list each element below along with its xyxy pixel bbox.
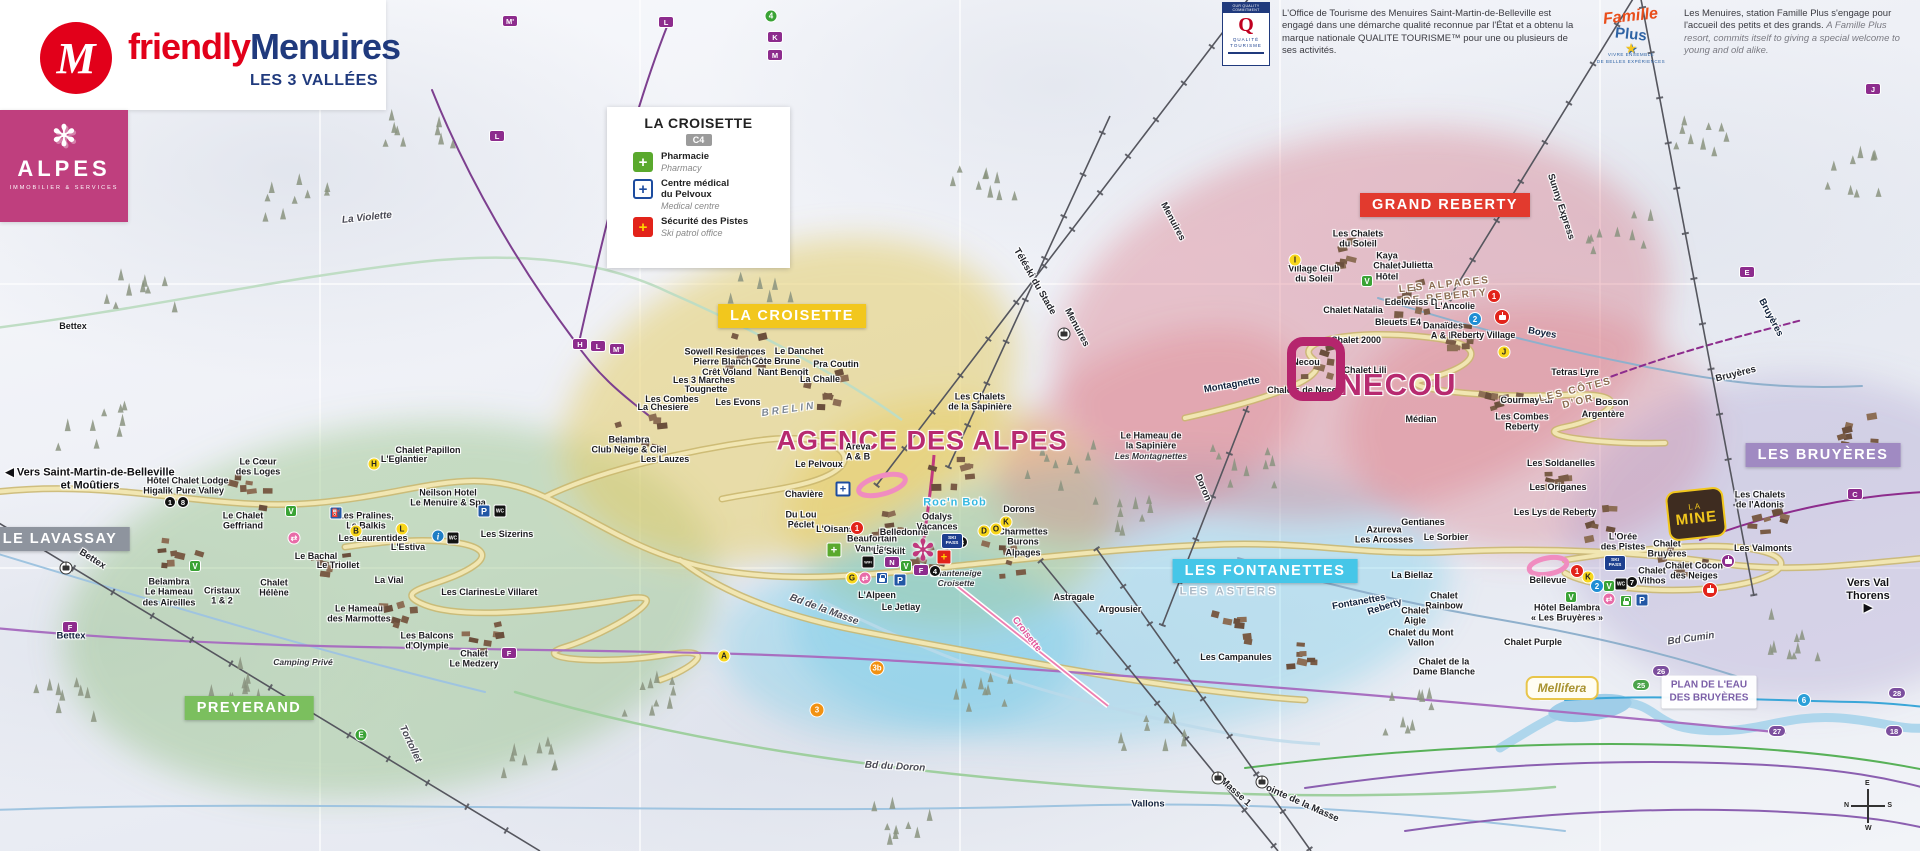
map-label: Les Campanules <box>1200 652 1272 662</box>
map-badge-M': M' <box>609 343 625 355</box>
lock-icon <box>1620 595 1632 607</box>
legend-item-fr: Centre médical du Pelvoux <box>661 179 729 201</box>
map-badge-1: 1 <box>1487 289 1501 303</box>
piste-boyes <box>1378 298 1862 387</box>
map-badge-⇄: ⇄ <box>1603 593 1616 606</box>
map-label: Charmettes Burons Alpages <box>998 526 1048 557</box>
map-label: Sunny Express <box>1544 173 1576 242</box>
zone-banner: GRAND REBERTY <box>1360 193 1530 217</box>
lifts-layer <box>0 0 1754 851</box>
map-badge-18: 18 <box>1885 725 1903 737</box>
map-label: Les Lys de Reberty <box>1514 507 1596 517</box>
croisette-carpet <box>952 582 1108 706</box>
qualite-logo-top: OUR QUALITY COMMITMENT <box>1223 3 1269 13</box>
map-label: Le Pelvoux <box>795 459 843 469</box>
brand-menuires: Menuires <box>250 26 400 67</box>
map-badge-28: 28 <box>1888 687 1906 699</box>
alpes-wordmark: ALPES <box>0 156 128 182</box>
compass-rose: E S W N <box>1851 789 1885 823</box>
map-badge-L: L <box>489 130 505 142</box>
map-label: Chalet Lodge Pure Valley <box>171 476 228 497</box>
famille-plus-block: FamillePlus ★ VIVRE ENSEMBLE DE BELLES E… <box>1592 2 1912 66</box>
map-label: Boyes <box>1527 326 1557 342</box>
map-badge-H: H <box>368 458 381 471</box>
ski-patrol-cross: + <box>633 217 653 237</box>
compass-axis <box>1851 805 1885 807</box>
map-badge-⛽: ⛽ <box>330 507 343 520</box>
map-label: Bosson <box>1595 397 1628 407</box>
map-label: Chalet Rainbow <box>1425 591 1463 612</box>
map-badge-B: B <box>350 525 363 538</box>
map-label: Pointe de la Masse <box>1258 781 1340 826</box>
map-label: LES CÔTES D'OR <box>1538 376 1616 416</box>
map-label: Camping Privé <box>273 658 333 668</box>
map-label: Les Chalets du Soleil <box>1333 229 1384 250</box>
brand-tagline: LES 3 VALLÉES <box>128 72 378 90</box>
map-label: Vallons <box>1131 800 1164 811</box>
map-label: Chalet Aigle <box>1401 606 1429 627</box>
qualite-tourisme-logo: OUR QUALITY COMMITMENT Q QUALITÉ TOURISM… <box>1222 2 1270 66</box>
qualite-tourisme-block: OUR QUALITY COMMITMENT Q QUALITÉ TOURISM… <box>1222 2 1582 66</box>
map-label: AGENCE DES ALPES <box>776 425 1067 456</box>
roads-layer <box>0 334 1920 700</box>
legend-item: +PharmaciePharmacy <box>633 152 790 173</box>
river <box>820 600 1920 748</box>
map-badge-L: L <box>590 340 606 352</box>
map-badge-E: E <box>1739 266 1755 278</box>
pistes-layer <box>0 24 1920 831</box>
map-label: L'Alpeen <box>858 590 896 600</box>
map-label: Les Combes Reberty <box>1495 412 1549 433</box>
map-label: Le Skilt <box>873 546 905 556</box>
legend-items: +PharmaciePharmacy+Centre médical du Pel… <box>607 152 790 239</box>
map-label: Chalet Cocon des Neiges <box>1665 561 1723 582</box>
map-label: Les Sizerins <box>481 529 534 539</box>
gondola-icon <box>1721 554 1735 568</box>
map-label: Le Triollet <box>317 560 360 570</box>
qualite-q-icon: Q <box>1238 13 1254 37</box>
qualite-logo-name: QUALITÉ TOURISME <box>1223 37 1269 50</box>
map-label: Les Pralines, Le Balkis <box>338 511 394 532</box>
map-label: Chavière <box>785 489 823 499</box>
map-label: Chalet Natalia <box>1323 305 1383 315</box>
map-labels-layer: AGENCE DES ALPESNECOU◀ Vers Saint-Martin… <box>0 0 1920 851</box>
lock-icon <box>876 572 888 584</box>
map-label: ◀ Vers Saint-Martin-de-Belleville et Moû… <box>5 466 174 491</box>
map-label: Les Chalets de l'Adonis <box>1735 490 1786 511</box>
map-label: Chalet de la Dame Blanche <box>1413 657 1475 678</box>
map-badge-O: O <box>990 523 1003 536</box>
map-label: Tetras Lyre <box>1551 367 1599 377</box>
map-badge-6: 6 <box>1797 693 1811 707</box>
legend-item-en: Pharmacy <box>661 163 709 173</box>
map-label: Le Danchet <box>775 346 824 356</box>
map-label: Roc'n Bob <box>923 497 987 510</box>
compass-right: S <box>1887 802 1892 809</box>
map-badge-3: 3 <box>810 703 825 718</box>
alpes-subtitle: IMMOBILIER & SERVICES <box>0 185 128 191</box>
ski-patrol-cross-icon: + <box>937 550 952 565</box>
map-badge-A: A <box>718 650 731 663</box>
map-label: Les Lauzes <box>641 454 690 464</box>
map-label: Areva A & B <box>845 442 870 463</box>
map-badge-N: N <box>884 556 900 568</box>
map-badge-3b: 3b <box>870 661 885 676</box>
map-label: Chalet Bruyères <box>1647 539 1686 560</box>
map-label: Bd de la Masse <box>788 592 860 628</box>
map-badge-1: 1 <box>850 521 864 535</box>
map-label: Les Clarines <box>441 587 495 597</box>
map-label: Vers Val Thorens ▶ <box>1842 577 1894 615</box>
map-label: Belambra Le Hameau des Aireilles <box>143 576 196 607</box>
map-badge-K: K <box>1582 571 1595 584</box>
map-label: Menuires <box>1157 201 1186 243</box>
map-label: L'Ancolie <box>1435 301 1475 311</box>
map-label: Chalet Le Medzery <box>449 649 498 670</box>
map-badge-⇄: ⇄ <box>859 572 872 585</box>
map-label: Masse 1 <box>1218 777 1253 810</box>
gondola-icon <box>1702 582 1718 598</box>
legend-item-en: Medical centre <box>661 201 729 211</box>
map-label: Tougnette <box>685 384 728 394</box>
map-label: Julietta <box>1401 260 1433 270</box>
map-badge-P: P <box>478 505 491 518</box>
pharmacy-cross-icon: + <box>827 543 842 558</box>
map-label: LES ALPAGES DE REBERTY <box>1398 275 1491 307</box>
map-label: Odalys Vacances <box>916 512 957 533</box>
famille-text: Les Menuires, station Famille Plus s'eng… <box>1684 2 1912 66</box>
map-label: Nant Benoît <box>758 367 809 377</box>
gondola-icon <box>60 562 73 575</box>
map-label: Bd du Doron <box>864 760 925 775</box>
necou-highlight-ring <box>1287 337 1345 401</box>
map-label: LES ASTERS <box>1180 586 1279 599</box>
map-label: Cristaux 1 & 2 <box>204 586 240 607</box>
terrain-layer <box>0 0 1920 851</box>
map-badge-K: K <box>767 31 783 43</box>
map-label: Bettex <box>56 632 85 643</box>
famille-star-icon: ★ <box>1592 44 1670 52</box>
map-badge-V: V <box>1603 580 1615 592</box>
map-label: Beaufortain Vanoise <box>847 534 897 555</box>
map-badge-WC: WC <box>1615 578 1628 591</box>
map-label: Le Bachal <box>295 551 338 561</box>
gondola-icon <box>1494 309 1510 325</box>
map-badge-2: 2 <box>1468 312 1482 326</box>
map-badge-J: J <box>1865 83 1881 95</box>
map-label: Dorons <box>1003 504 1035 514</box>
map-label: Hôtel Higalik <box>143 476 173 497</box>
map-badge-WC: WC <box>494 505 507 518</box>
map-badge-G: G <box>846 572 859 585</box>
brand-wordmark: friendlyMenuires <box>128 26 400 68</box>
alpes-agency-card: ✻ ALPES IMMOBILIER & SERVICES <box>0 110 128 222</box>
famille-plus-logo: FamillePlus ★ VIVRE ENSEMBLE DE BELLES E… <box>1592 2 1670 66</box>
map-label: Belambra Club Neige & Ciel <box>591 435 666 456</box>
map-label: Le Sorbier <box>1424 532 1469 542</box>
map-badges-layer: M'LLHLM'JECFFKMNF4EVVVVVVHBLIJADOKKG1112… <box>0 0 1920 851</box>
brand-card: M friendlyMenuires LES 3 VALLÉES <box>0 0 386 110</box>
compass-top: E <box>1865 780 1870 787</box>
map-badge-1: 1 <box>1570 564 1584 578</box>
map-label: Chanteneige Croisette <box>930 569 981 589</box>
legend-grid-ref: C4 <box>686 134 712 146</box>
map-label: Les Soldanelles <box>1527 458 1595 468</box>
map-label: Tortollet <box>396 724 423 765</box>
map-label: Fontanettes <box>1332 593 1387 613</box>
zone-banner: LE LAVASSAY <box>0 527 129 551</box>
map-label: Azureva Les Arcosses <box>1355 525 1413 546</box>
map-badge-SKI PASS: SKI PASS <box>941 533 963 549</box>
map-label: Sowell Residences Pierre Blanche <box>684 347 765 368</box>
compass-bottom: W <box>1865 825 1872 832</box>
map-badge-V: V <box>1361 275 1373 287</box>
map-label: La Vial <box>375 575 404 585</box>
map-badge-M': M' <box>502 15 518 27</box>
map-badge-C: C <box>1847 488 1863 500</box>
zone-banner: LES FONTANETTES <box>1173 559 1358 583</box>
piste-fontanettes <box>1238 558 1742 678</box>
map-label: Le Hameau des Marmottes <box>327 604 391 625</box>
compass-left: N <box>1844 802 1849 809</box>
path-purple-3 <box>1700 492 1920 540</box>
map-label: Hôtel Belambra « Les Bruyères » <box>1531 603 1603 624</box>
map-label: La Chesiere <box>637 402 688 412</box>
map-label: Les Montagnettes <box>1115 452 1187 462</box>
path-dashed-purple <box>1602 320 1802 380</box>
map-label: La Biellaz <box>1391 570 1433 580</box>
map-label: Menuires <box>1061 307 1090 349</box>
map-badge-V: V <box>285 505 297 517</box>
map-label: La Violette <box>341 210 392 227</box>
map-label: Bd Cumin <box>1667 630 1715 648</box>
map-label: Gentianes <box>1401 517 1445 527</box>
map-label: BRELIN <box>761 400 817 419</box>
map-label: Neilson Hotel Le Menuire & Spa <box>410 488 486 509</box>
map-badge-27: 27 <box>1768 725 1786 737</box>
map-label: Médian <box>1405 414 1436 424</box>
map-label: La Challe <box>800 374 840 384</box>
piste-bd-du-doron <box>515 692 1555 795</box>
map-label: Les Balcons d'Olympie <box>400 631 453 652</box>
gondola-icon <box>1212 772 1225 785</box>
map-badge-M: M <box>767 49 783 61</box>
map-label: Côte Brune <box>752 356 801 366</box>
map-label: Le Cœur des Loges <box>236 457 281 478</box>
famille-plus-word: Plus <box>1614 24 1647 44</box>
menuires-logo-icon: M <box>40 22 112 94</box>
map-badge-H: H <box>572 338 588 350</box>
gondola-icon <box>1058 328 1071 341</box>
legend-item: +Sécurité des PistesSki patrol office <box>633 217 790 238</box>
map-badge-WiFi: WiFi <box>862 556 875 569</box>
map-label: Pra Coutin <box>813 359 859 369</box>
map-badge-25: 25 <box>1632 679 1650 691</box>
map-label: Courmayeur <box>1500 395 1553 405</box>
map-label: Les Origanes <box>1529 482 1586 492</box>
zone-banners-layer: LA CROISETTEGRAND REBERTYLES FONTANETTES… <box>0 0 1920 851</box>
legend-card: LA CROISETTE C4 +PharmaciePharmacy+Centr… <box>607 107 790 268</box>
bus-line <box>0 628 1785 733</box>
piste-bettex <box>0 553 485 692</box>
map-label: Chalet Hélène <box>259 578 289 599</box>
agence-des-alpes-marker: ✻ <box>910 534 935 569</box>
map-badge-J: J <box>1498 346 1511 359</box>
qualite-text: L'Office de Tourisme des Menuires Saint-… <box>1282 2 1582 66</box>
map-label: Le Chalet Geffriand <box>223 511 264 532</box>
map-label: Bleuets E4 <box>1375 317 1421 327</box>
map-badge-P: P <box>1636 594 1649 607</box>
gondola-icon <box>1256 776 1269 789</box>
map-badge-⇄: ⇄ <box>288 532 301 545</box>
map-label: Téléski du Stade <box>1011 247 1058 317</box>
map-label: Chalet Papillon <box>395 445 460 455</box>
map-badge-7: 7 <box>1626 576 1638 588</box>
map-badge-SKI PASS: SKI PASS <box>1604 555 1626 571</box>
map-label: Montagnette <box>1203 376 1261 397</box>
map-label: Croisette <box>1009 615 1043 654</box>
map-label: Le Villaret <box>495 587 538 597</box>
map-label: Les Valmonts <box>1734 543 1792 553</box>
map-label: Bettex <box>59 321 87 331</box>
map-label: Bettex <box>77 548 107 573</box>
map-label: Les Chalets de la Sapinière <box>948 392 1012 413</box>
route-26 <box>1305 762 1920 788</box>
map-badge-D: D <box>978 525 991 538</box>
map-badge-I: I <box>1289 254 1302 267</box>
map-label: L'Eglantier <box>381 454 427 464</box>
map-label: Du Lou Péclet <box>786 510 817 531</box>
pharmacy-cross: + <box>633 152 653 172</box>
map-badge-i: i <box>432 530 445 543</box>
map-badge-WC: WC <box>447 532 460 545</box>
resort-map: LA CROISETTEGRAND REBERTYLES FONTANETTES… <box>0 0 1920 851</box>
map-badge-1: 1 <box>164 496 176 508</box>
map-badge-V: V <box>189 560 201 572</box>
route-27 <box>1405 810 1920 831</box>
map-badge-P: P <box>894 574 907 587</box>
map-label: Le Hameau de la Sapinière <box>1120 431 1181 452</box>
map-badge-2: 2 <box>1590 579 1604 593</box>
map-label: Edelweiss D <box>1385 297 1438 307</box>
la-mine-logo: LA MINE <box>1665 486 1728 542</box>
zone-banner: LES BRUYÈRES <box>1746 443 1901 467</box>
legend-item-fr: Pharmacie <box>661 152 709 163</box>
map-label: Village Club du Soleil <box>1288 264 1339 285</box>
zone-banner: LA CROISETTE <box>718 304 866 328</box>
map-label: Chalet du Mont Vallon <box>1389 628 1454 649</box>
legend-item-en: Ski patrol office <box>661 228 748 238</box>
map-label: Crêt Voland <box>702 367 752 377</box>
brand-friendly: friendly <box>128 26 250 67</box>
famille-sub: VIVRE ENSEMBLE DE BELLES EXPÉRIENCES <box>1592 52 1670 66</box>
map-label: Les Laurentides <box>338 533 407 543</box>
map-badge-V: V <box>1565 591 1577 603</box>
map-label: Les 3 Marches <box>673 375 735 385</box>
map-label: Astragale <box>1053 592 1094 602</box>
map-label: Les Evons <box>715 397 760 407</box>
map-label: Le Jetlay <box>882 602 921 612</box>
legend-title: LA CROISETTE <box>607 115 790 131</box>
villages-and-trees <box>33 109 1881 845</box>
zone-banner: PREYERAND <box>185 696 314 720</box>
map-badge-K: K <box>1000 516 1013 529</box>
map-label: Danaïdes A & B <box>1423 321 1463 342</box>
map-badge-4: 4 <box>765 10 778 23</box>
mellifera-logo: Mellifera <box>1526 676 1599 700</box>
medical-cross-icon: + <box>836 482 851 497</box>
map-label: Reberty Village <box>1451 330 1516 340</box>
map-label: Argentère <box>1582 409 1625 419</box>
map-badge-F: F <box>62 621 78 633</box>
map-label: Bellevue <box>1529 575 1566 585</box>
route-25 <box>1245 744 1920 770</box>
map-badge-L: L <box>396 523 409 536</box>
map-badge-8: 8 <box>177 496 189 508</box>
footpath-green <box>0 258 902 420</box>
district-zones <box>37 75 1920 839</box>
agence-pointer <box>924 455 934 538</box>
map-label: Argousier <box>1099 604 1142 614</box>
sled-tracks <box>856 470 1568 577</box>
map-badge-L: L <box>658 16 674 28</box>
legend-item: +Centre médical du PelvouxMedical centre <box>633 179 790 211</box>
map-badge-3: 3 <box>956 536 968 548</box>
medical-cross: + <box>633 179 653 199</box>
map-grid <box>0 0 1920 851</box>
map-label: Bruyères <box>1756 297 1785 339</box>
map-label: Chalet Lili <box>1343 365 1386 375</box>
map-label: L'Orée des Pistes <box>1601 532 1646 553</box>
alpes-flake-icon: ✻ <box>0 122 128 152</box>
map-badge-F: F <box>501 647 517 659</box>
map-label: Kaya Chalet Hôtel <box>1373 250 1401 281</box>
map-label: Les Combes <box>645 394 699 404</box>
plan-de-leau-label: PLAN DE L'EAU DES BRUYÈRES <box>1662 676 1757 709</box>
map-label: L'Estiva <box>391 542 425 552</box>
map-label: Bruyères <box>1715 365 1758 386</box>
map-label: Chalet Vithos <box>1638 566 1666 587</box>
map-label: Doron <box>1192 473 1213 503</box>
map-label: L'Oisans <box>816 524 854 534</box>
map-badge-E: E <box>355 729 368 742</box>
map-label: Reberty <box>1366 597 1403 618</box>
qualite-logo-bar <box>1228 52 1265 54</box>
map-label: NECOU <box>1340 367 1457 403</box>
piste-vallons <box>0 804 1565 831</box>
map-label: Chalet Purple <box>1504 637 1562 647</box>
legend-item-fr: Sécurité des Pistes <box>661 217 748 228</box>
